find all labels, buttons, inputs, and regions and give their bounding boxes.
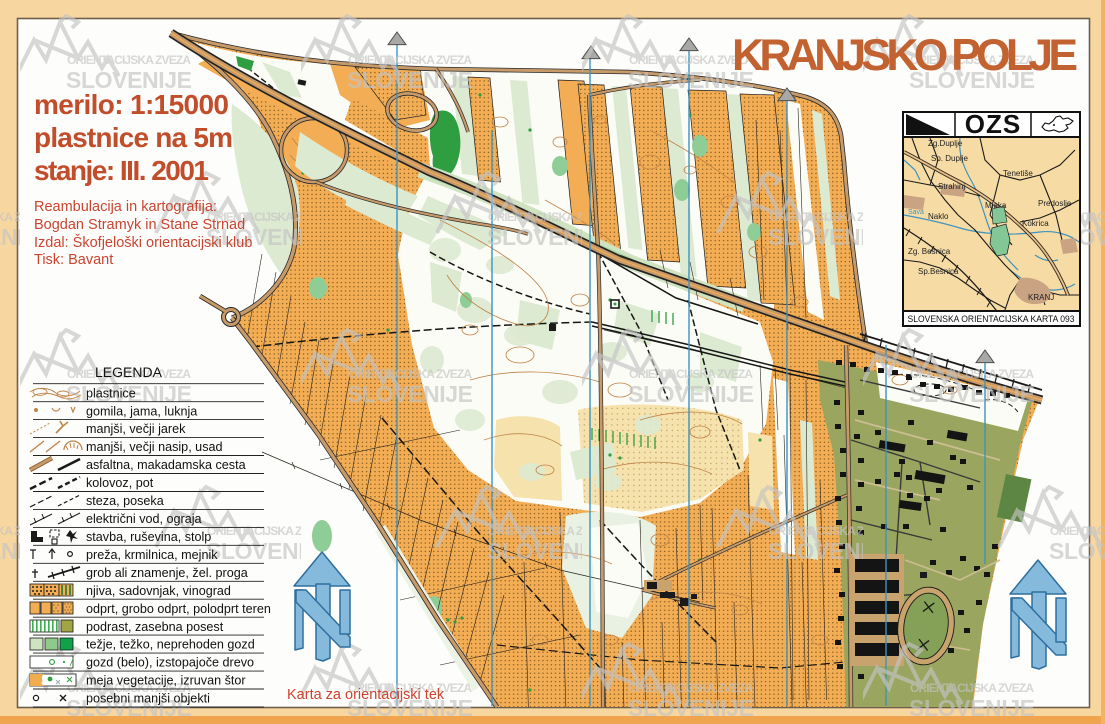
svg-text:Sp. Duplje: Sp. Duplje [931, 154, 968, 163]
svg-text:meja vegetacije, izruvan štor: meja vegetacije, izruvan štor [86, 674, 246, 688]
svg-text:Tisk: Bavant: Tisk: Bavant [34, 252, 113, 268]
svg-text:gomila, jama, luknja: gomila, jama, luknja [86, 404, 197, 418]
svg-text:SLOVENSKA ORIENTACIJSKA KARTA: SLOVENSKA ORIENTACIJSKA KARTA 093 [908, 314, 1075, 324]
svg-text:Karta za orientacijski tek: Karta za orientacijski tek [287, 687, 445, 703]
svg-text:gozd (belo), izstopajoče drevo: gozd (belo), izstopajoče drevo [86, 656, 254, 670]
svg-text:grob ali znamenje, žel. proga: grob ali znamenje, žel. proga [86, 566, 248, 580]
svg-text:Sava: Sava [908, 209, 924, 216]
svg-text:KRANJ: KRANJ [1028, 293, 1054, 302]
svg-text:kolovoz, pot: kolovoz, pot [86, 476, 154, 490]
svg-text:steza, poseka: steza, poseka [86, 494, 164, 508]
svg-text:posebni manjši objekti: posebni manjši objekti [86, 692, 210, 706]
svg-text:njiva, sadovnjak, vinograd: njiva, sadovnjak, vinograd [86, 584, 231, 598]
svg-text:asfaltna, makadamska cesta: asfaltna, makadamska cesta [86, 458, 246, 472]
svg-text:stavba, ruševina, stolp: stavba, ruševina, stolp [86, 530, 211, 544]
svg-text:Sp.Besnica: Sp.Besnica [918, 267, 959, 276]
svg-text:stanje: III. 2001: stanje: III. 2001 [34, 155, 209, 186]
svg-text:plastnice: plastnice [86, 386, 136, 400]
svg-text:Zg. Besnica: Zg. Besnica [908, 247, 951, 256]
svg-text:Reambulacija in kartografija:: Reambulacija in kartografija: [34, 199, 217, 215]
svg-text:Kokrica: Kokrica [1022, 219, 1049, 228]
svg-text:Mlaka: Mlaka [985, 201, 1007, 210]
svg-text:KRANJSKO POLJE: KRANJSKO POLJE [732, 31, 1078, 80]
svg-text:merilo: 1:15000: merilo: 1:15000 [34, 89, 229, 120]
svg-text:Bogdan Stramyk in Stane Strnad: Bogdan Stramyk in Stane Strnad [34, 217, 245, 233]
svg-text:težje, težko, neprehoden gozd: težje, težko, neprehoden gozd [86, 638, 255, 652]
svg-text:OZS: OZS [965, 109, 1021, 139]
svg-text:manjši, večji nasip, usad: manjši, večji nasip, usad [86, 440, 223, 454]
svg-text:odprt, grobo odprt, polodprt t: odprt, grobo odprt, polodprt teren [86, 602, 271, 616]
svg-text:plastnice na 5m: plastnice na 5m [34, 122, 233, 153]
svg-text:Strahinj: Strahinj [938, 182, 965, 191]
svg-text:Predoslje: Predoslje [1038, 199, 1072, 208]
svg-text:električni vod, ograja: električni vod, ograja [86, 512, 202, 526]
svg-text:preža, krmilnica, mejnik: preža, krmilnica, mejnik [86, 548, 218, 562]
svg-text:Tenetiše: Tenetiše [1003, 169, 1033, 178]
svg-text:Izdal: Škofjeloški orientacijs: Izdal: Škofjeloški orientacijski klub [34, 234, 252, 251]
svg-text:Naklo: Naklo [928, 212, 949, 221]
svg-text:Zg.Duplje: Zg.Duplje [928, 139, 963, 148]
svg-text:manjši, večji jarek: manjši, večji jarek [86, 422, 186, 436]
svg-text:LEGENDA: LEGENDA [95, 364, 163, 380]
svg-text:podrast, zasebna posest: podrast, zasebna posest [86, 620, 224, 634]
